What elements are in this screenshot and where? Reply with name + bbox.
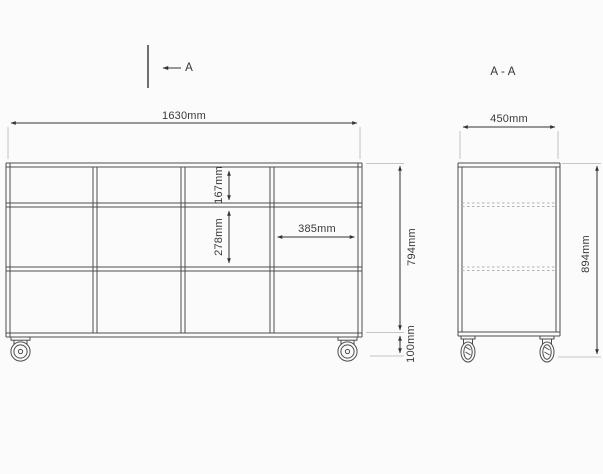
section-hidden-shelf-lines <box>462 203 556 271</box>
technical-drawing-page: A A - A 1630mm 450mm 167mm 278mm 385mm 7… <box>0 0 603 474</box>
caster-section-right-icon <box>540 336 554 362</box>
section-view-title: A - A <box>490 66 515 78</box>
section-marker-label: A <box>185 62 193 74</box>
dim-label-compartment-width: 385mm <box>298 223 336 235</box>
dim-label-caster-height: 100mm <box>405 325 417 363</box>
dim-label-front-body-height: 794mm <box>406 228 418 266</box>
dim-label-section-depth: 450mm <box>490 113 528 125</box>
front-view-shelf-lines <box>6 163 362 337</box>
dim-label-middle-row-height: 278mm <box>213 218 225 256</box>
caster-front-right-icon <box>338 337 357 361</box>
dim-label-front-width: 1630mm <box>162 110 206 122</box>
section-view <box>458 163 560 362</box>
front-view-divider-lines <box>6 163 362 337</box>
section-view-outline <box>458 163 560 336</box>
caster-front-left-icon <box>11 337 30 361</box>
dim-label-section-total-height: 894mm <box>580 235 592 273</box>
dim-label-top-row-height: 167mm <box>213 166 225 204</box>
section-cut-marker <box>148 45 181 88</box>
dimension-lines <box>11 123 597 354</box>
front-view <box>6 163 362 361</box>
caster-section-left-icon <box>461 336 475 362</box>
